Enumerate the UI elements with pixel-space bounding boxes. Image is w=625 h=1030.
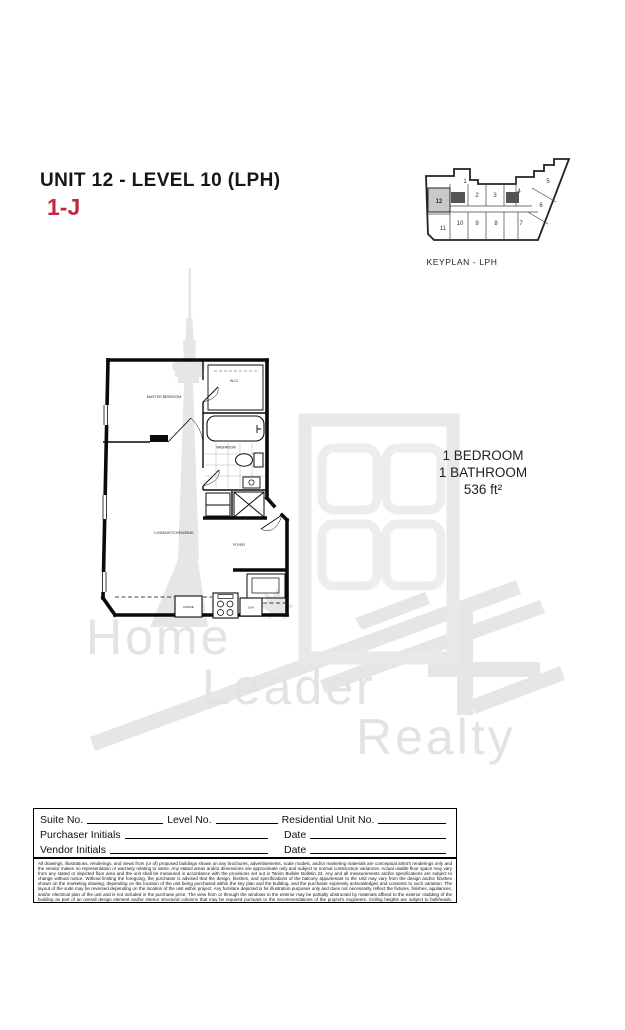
foyer-closet (247, 574, 285, 598)
level-no-blank-line (216, 822, 278, 824)
unit-model-code: 1-J (47, 194, 80, 221)
purchaser-initials-label: Purchaser Initials (40, 829, 121, 841)
date-blank-line-2 (310, 852, 446, 854)
label-washroom: WASHROOM (216, 446, 236, 450)
disclaimer-text: All drawings, illustrations, renderings,… (38, 861, 452, 903)
keyplan-unit-11: 11 (440, 226, 447, 232)
residential-unit-no-blank-line (378, 822, 446, 824)
keyplan-unit-12: 12 (436, 199, 443, 205)
keyplan-unit-10: 10 (457, 221, 464, 227)
toilet-tank (254, 453, 263, 467)
vendor-initials-label: Vendor Initials (40, 844, 106, 856)
label-foyer: FOYER (233, 543, 245, 547)
purchaser-initials-blank-line (125, 837, 268, 839)
suite-no-blank-line (87, 822, 163, 824)
label-fridge: FRIDGE (183, 605, 194, 609)
toilet-bowl (236, 454, 253, 466)
stat-area: 536 ft² (420, 481, 546, 498)
label-living: LIVING/KITCHEN/DINE (154, 531, 194, 535)
watermark-word-leader: Leader (202, 662, 376, 712)
washroom-fixtures (205, 416, 265, 488)
keyplan-drawing: 1 2 3 4 5 6 7 8 9 10 11 12 (420, 150, 582, 250)
keyplan-caption: KEYPLAN - LPH (412, 257, 512, 267)
date-label-2: Date (284, 844, 306, 856)
residential-unit-no-label: Residential Unit No. (282, 814, 375, 826)
floorplan-drawing: MASTER BEDROOM W.I.C WASHROOM LIVING/KIT… (95, 350, 295, 635)
vanity-sink (243, 477, 260, 488)
stat-bathrooms: 1 BATHROOM (420, 464, 546, 481)
bathtub (207, 416, 264, 441)
level-no-label: Level No. (167, 814, 211, 826)
label-dishwasher: D/W (248, 606, 254, 610)
watermark-word-realty: Realty (356, 712, 516, 762)
door-swings (168, 387, 282, 531)
date-label-1: Date (284, 829, 306, 841)
label-wic: W.I.C (230, 379, 238, 383)
bedroom-wall-nook (150, 435, 168, 442)
form-row-purchaser: Purchaser Initials Date (40, 826, 450, 841)
date-blank-line-1 (310, 837, 446, 839)
suite-no-label: Suite No. (40, 814, 83, 826)
label-master-bedroom: MASTER BEDROOM (147, 395, 182, 399)
cooktop-box (213, 593, 238, 618)
stat-bedrooms: 1 BEDROOM (420, 447, 546, 464)
unit-stats: 1 BEDROOM 1 BATHROOM 536 ft² (420, 447, 546, 498)
form-row-vendor: Vendor Initials Date (40, 841, 450, 856)
form-row-suite: Suite No. Level No. Residential Unit No. (40, 811, 450, 826)
page-title: UNIT 12 - LEVEL 10 (LPH) (40, 170, 280, 192)
vendor-initials-blank-line (110, 852, 268, 854)
disclaimer-box: All drawings, illustrations, renderings,… (33, 858, 457, 903)
signature-form: Suite No. Level No. Residential Unit No.… (33, 808, 457, 858)
laundry-closet (206, 492, 264, 517)
